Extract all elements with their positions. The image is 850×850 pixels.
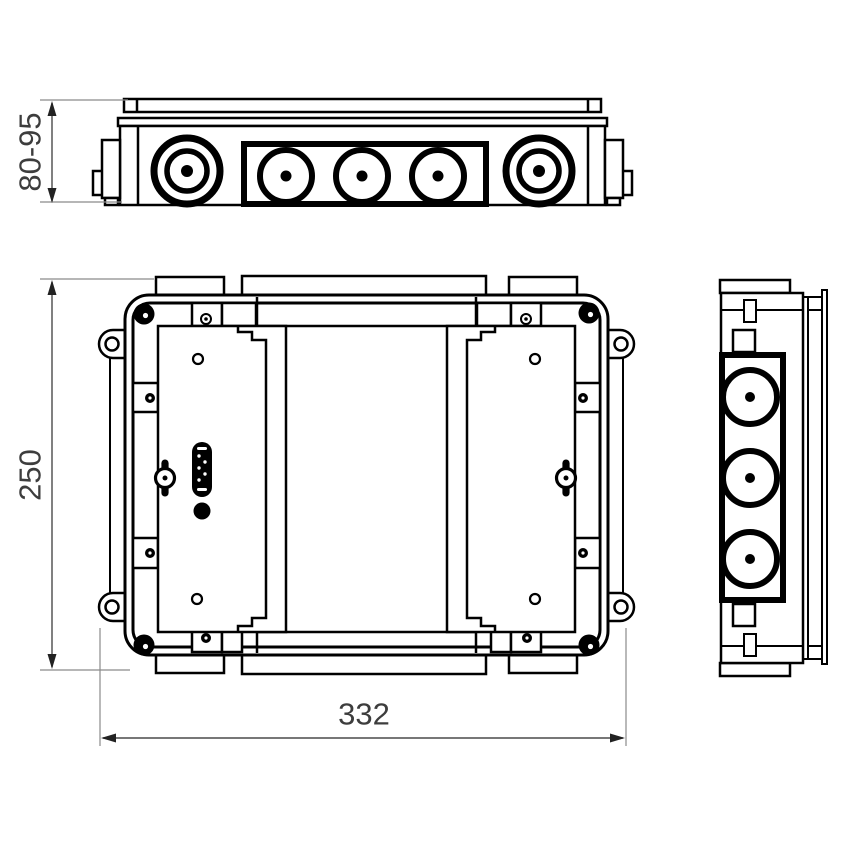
- side-tab: [102, 140, 120, 198]
- lid-cap: [808, 646, 822, 659]
- arrowhead-left: [101, 734, 116, 743]
- lid-plate-outer: [822, 290, 827, 664]
- technical-drawing-svg: 80-95 250 332: [0, 0, 850, 850]
- front-view: [99, 276, 634, 674]
- cover-panel-left: [158, 326, 286, 632]
- lid-lip-bottom: [720, 663, 790, 676]
- clip: [477, 303, 511, 326]
- clip-rivet-icon: [145, 393, 155, 403]
- clip-rivet-icon: [522, 633, 532, 643]
- clip: [222, 631, 242, 652]
- dimension-label-depth: 80-95: [13, 112, 48, 191]
- mounting-ear: [608, 330, 634, 358]
- arrowhead-up: [48, 280, 57, 295]
- corner-screw-icon: [134, 304, 155, 325]
- top-view: [93, 99, 632, 205]
- corner-screw-icon: [579, 635, 600, 656]
- arrowhead-down: [48, 188, 57, 203]
- clip-rivet-icon: [578, 548, 588, 558]
- side-tab-lower: [733, 604, 755, 626]
- corner-screw-icon: [134, 635, 155, 656]
- dimension-label-height: 250: [13, 449, 48, 501]
- mounting-ear: [99, 330, 125, 358]
- clip: [491, 631, 511, 652]
- arrowhead-down: [48, 654, 57, 669]
- lid-cap: [808, 297, 822, 310]
- side-step: [744, 634, 756, 656]
- corner-screw-icon: [579, 303, 600, 324]
- dimension-label-width: 332: [338, 697, 390, 732]
- clip-rivet-icon: [145, 548, 155, 558]
- lid-plate-inner: [803, 297, 808, 659]
- side-step: [744, 300, 756, 322]
- dsub-connector-icon: [192, 442, 212, 497]
- clip-rivet-icon: [578, 393, 588, 403]
- lid-strip: [124, 99, 601, 112]
- grommet-icon: [194, 503, 211, 520]
- lid-lip-top: [720, 280, 790, 293]
- mounting-ear: [608, 593, 634, 621]
- side-tab-upper: [733, 330, 755, 352]
- arrowhead-up: [48, 101, 57, 116]
- arrowhead-right: [610, 734, 625, 743]
- side-tab-step: [607, 198, 620, 205]
- clip-rivet-icon: [201, 633, 211, 643]
- side-tab: [605, 140, 623, 198]
- clip: [222, 303, 256, 326]
- side-view: [720, 280, 827, 676]
- drawing-page: 80-95 250 332: [0, 0, 850, 850]
- mounting-ear: [99, 593, 125, 621]
